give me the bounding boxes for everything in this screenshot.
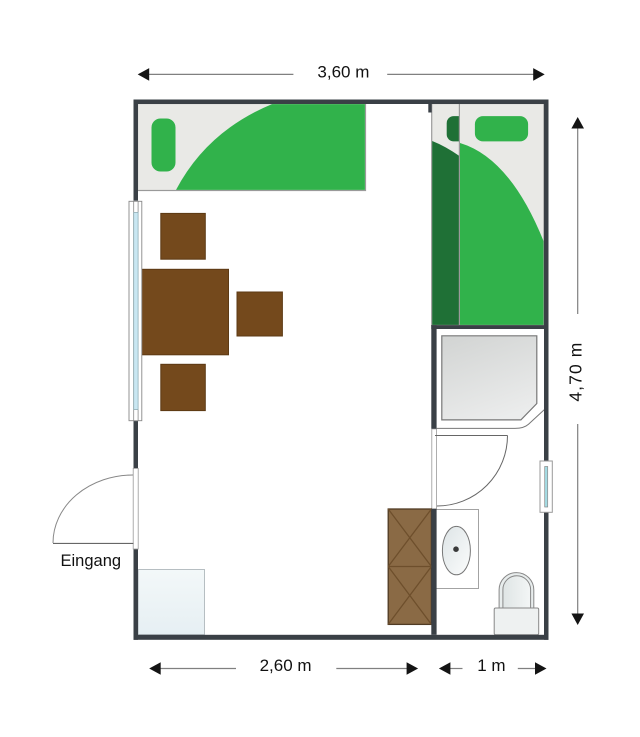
svg-text:3,60 m: 3,60 m [317, 62, 369, 81]
svg-text:4,70 m: 4,70 m [566, 342, 586, 402]
svg-text:1 m: 1 m [477, 656, 505, 675]
svg-text:2,60 m: 2,60 m [260, 656, 312, 675]
svg-text:Eingang: Eingang [61, 552, 122, 570]
